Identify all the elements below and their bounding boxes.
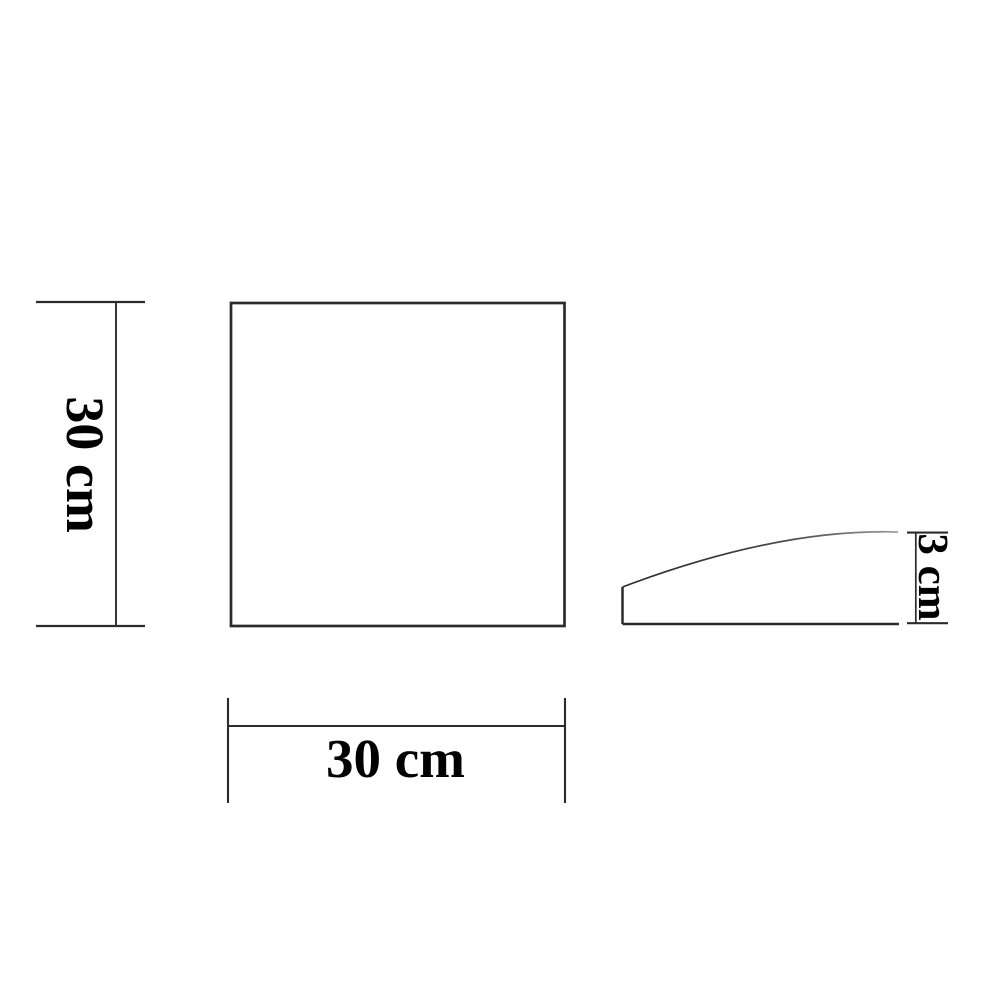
svg-text:3 cm: 3 cm: [909, 533, 956, 620]
svg-text:30 cm: 30 cm: [326, 728, 465, 789]
svg-text:30 cm: 30 cm: [55, 396, 115, 532]
